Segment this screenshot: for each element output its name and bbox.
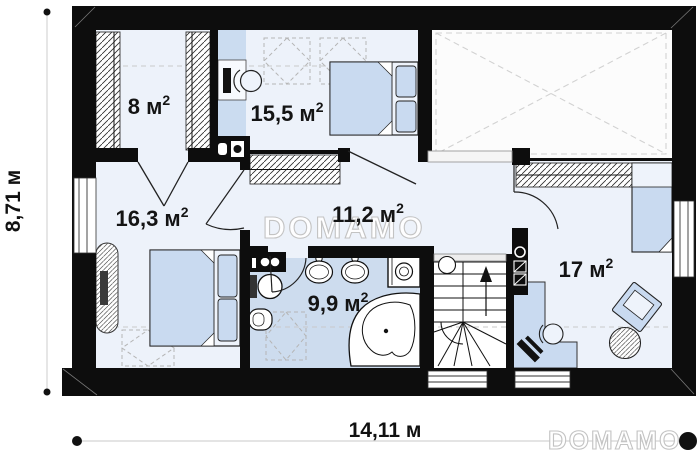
window-icon	[428, 371, 487, 388]
room-16-3-sup: 2	[181, 204, 189, 220]
hallway-sup: 2	[396, 200, 404, 216]
bathroom-label: 9,9 м2	[308, 289, 369, 316]
width-dimension-label: 14,11 м	[349, 419, 422, 442]
bidet-icon	[249, 309, 272, 330]
monitor-icon	[223, 68, 231, 93]
side-table-icon	[610, 328, 641, 359]
office-chair-icon	[241, 71, 262, 92]
room-15-5-label: 15,5 м2	[250, 99, 323, 126]
window-icon	[515, 371, 570, 388]
room-15-5-area: 15,5 м	[250, 101, 315, 126]
void-railing	[428, 151, 512, 162]
office-chair-icon	[543, 324, 563, 344]
room-16-3-label: 16,3 м2	[115, 204, 188, 231]
double-bed-icon	[150, 250, 240, 346]
window-icon	[674, 201, 694, 277]
room-8-area: 8 м	[128, 94, 163, 119]
bathroom-area: 9,9 м	[308, 291, 361, 316]
bathroom-sup: 2	[361, 289, 369, 305]
wall-top	[74, 6, 696, 30]
room-17-area: 17 м	[559, 257, 606, 282]
watermark-logo-dot-icon	[679, 432, 697, 450]
wardrobe-icon	[96, 32, 120, 150]
single-bed-icon	[632, 163, 672, 252]
room-17-label: 17 м2	[559, 255, 614, 282]
toilet-icon	[249, 275, 282, 299]
wall-bottom	[62, 368, 696, 396]
hallway-label: 11,2 м2	[332, 200, 404, 227]
room-8-sup: 2	[162, 92, 170, 108]
height-dimension-label: 8,71 м	[2, 170, 25, 232]
room-16-3-area: 16,3 м	[115, 206, 180, 231]
hallway-area: 11,2 м	[332, 202, 396, 227]
wardrobe-icon	[186, 32, 210, 150]
floor-plan-page: DOMAMO DOMAMO 8 м2 15,5 м2 16,3 м2 11,2 …	[0, 0, 700, 457]
room-15-5-sup: 2	[316, 99, 324, 115]
room-17-sup: 2	[606, 255, 614, 271]
wardrobe-icon	[516, 163, 632, 187]
washing-machine-icon	[388, 256, 420, 287]
radiator-icon	[96, 243, 118, 333]
floor-plan-drawing: DOMAMO DOMAMO 8 м2 15,5 м2 16,3 м2 11,2 …	[0, 0, 700, 457]
window-icon	[74, 178, 96, 253]
wardrobe-icon	[250, 155, 340, 184]
newel-post-icon	[439, 257, 456, 274]
double-bed-icon	[330, 62, 418, 135]
niche-washbasin-icon	[212, 136, 250, 162]
watermark-logo: DOMAMO	[548, 425, 681, 455]
